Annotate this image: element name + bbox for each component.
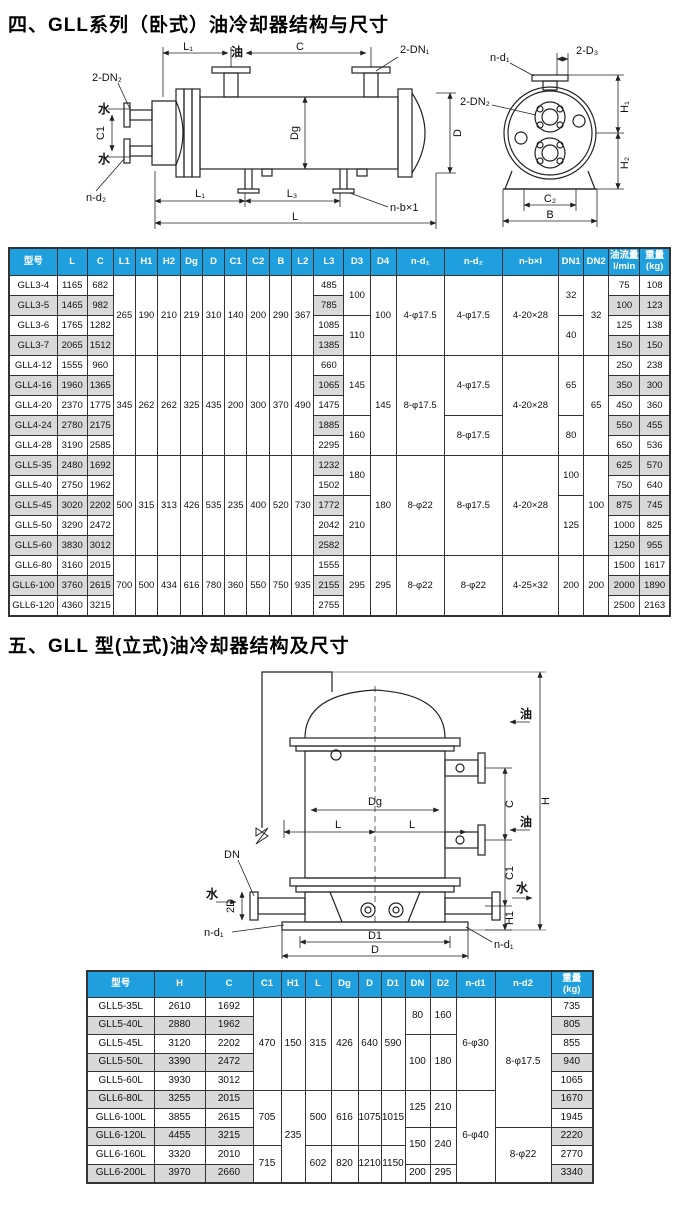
value-cell: 210 [344, 496, 370, 556]
dim-2d: 2D [225, 899, 237, 913]
table1-body: GLL3-41165682265190210219310140200290367… [9, 276, 670, 617]
value-cell: 650 [609, 436, 640, 456]
value-cell: 108 [640, 276, 670, 296]
value-cell: 2370 [57, 396, 87, 416]
model-cell: GLL3-6 [9, 316, 57, 336]
column-header: 型号 [9, 248, 57, 276]
model-cell: GLL5-40L [87, 1016, 154, 1035]
value-cell: 805 [551, 1016, 593, 1035]
value-cell: 325 [180, 356, 202, 456]
value-cell: 1065 [551, 1072, 593, 1091]
table2-body: GLL5-35L26101692470150315426640590801606… [87, 998, 593, 1184]
value-cell: 1772 [314, 496, 344, 516]
value-cell: 1512 [87, 336, 113, 356]
value-cell: 150 [640, 336, 670, 356]
value-cell: 2010 [205, 1146, 253, 1165]
value-cell: 100 [584, 456, 609, 556]
dim-h: H [540, 797, 552, 805]
value-cell: 705 [253, 1090, 281, 1146]
value-cell: 485 [314, 276, 344, 296]
value-cell: 434 [157, 556, 180, 617]
value-cell: 2202 [87, 496, 113, 516]
value-cell: 2880 [154, 1016, 205, 1035]
value-cell: 3930 [154, 1072, 205, 1091]
value-cell: 3830 [57, 536, 87, 556]
value-cell: 500 [113, 456, 135, 556]
value-cell: 8-φ22 [444, 556, 502, 617]
dim-d1: D1 [368, 930, 382, 942]
value-cell: 640 [640, 476, 670, 496]
value-cell: 3340 [551, 1164, 593, 1183]
value-cell: 160 [344, 416, 370, 456]
value-cell: 200 [247, 276, 270, 356]
column-header: H1 [281, 971, 305, 998]
value-cell: 2615 [205, 1109, 253, 1128]
value-cell: 2770 [551, 1146, 593, 1165]
value-cell: 315 [135, 456, 157, 556]
model-cell: GLL5-50 [9, 516, 57, 536]
value-cell: 982 [87, 296, 113, 316]
value-cell: 735 [551, 998, 593, 1017]
value-cell: 200 [405, 1164, 430, 1183]
value-cell: 455 [640, 416, 670, 436]
model-cell: GLL4-12 [9, 356, 57, 376]
value-cell: 1617 [640, 556, 670, 576]
value-cell: 2660 [205, 1164, 253, 1183]
model-cell: GLL3-4 [9, 276, 57, 296]
value-cell: 100 [370, 276, 396, 356]
value-cell: 3012 [205, 1072, 253, 1091]
oil-label-top2: 油 [520, 706, 532, 721]
side-view [124, 67, 425, 193]
value-cell: 219 [180, 276, 202, 356]
value-cell: 2202 [205, 1035, 253, 1054]
value-cell: 1962 [87, 476, 113, 496]
value-cell: 730 [292, 456, 314, 556]
value-cell: 250 [609, 356, 640, 376]
value-cell: 550 [247, 556, 270, 617]
value-cell: 65 [584, 356, 609, 456]
column-header: DN [405, 971, 430, 998]
value-cell: 3760 [57, 576, 87, 596]
value-cell: 2472 [87, 516, 113, 536]
section1-title: 四、GLL系列（卧式）油冷却器结构与尺寸 [8, 10, 677, 37]
value-cell: 360 [640, 396, 670, 416]
value-cell: 138 [640, 316, 670, 336]
model-cell: GLL6-120L [87, 1127, 154, 1146]
value-cell: 80 [405, 998, 430, 1035]
value-cell: 500 [135, 556, 157, 617]
model-cell: GLL5-60L [87, 1072, 154, 1091]
value-cell: 8-φ17.5 [444, 456, 502, 556]
model-cell: GLL4-20 [9, 396, 57, 416]
value-cell: 100 [344, 276, 370, 316]
value-cell: 2780 [57, 416, 87, 436]
value-cell: 3855 [154, 1109, 205, 1128]
table-row: GLL3-41165682265190210219310140200290367… [9, 276, 670, 296]
value-cell: 123 [640, 296, 670, 316]
header-row: 型号HCC1H1LDgDD1DND2n-d1n-d2重量 (kg) [87, 971, 593, 998]
dim-l: L [292, 211, 298, 223]
column-header: H2 [157, 248, 180, 276]
value-cell: 2295 [314, 436, 344, 456]
column-header: Dg [331, 971, 358, 998]
value-cell: 125 [405, 1090, 430, 1127]
column-header: L2 [292, 248, 314, 276]
value-cell: 8-φ17.5 [495, 998, 551, 1128]
dim-2dn2: 2-DN₂ [92, 72, 122, 84]
dim-nd1-right: n-d₁ [494, 939, 514, 951]
model-cell: GLL3-7 [9, 336, 57, 356]
value-cell: 2755 [314, 596, 344, 617]
value-cell: 2163 [640, 596, 670, 617]
column-header: C1 [253, 971, 281, 998]
vertical-dimensions [216, 672, 546, 959]
value-cell: 125 [559, 496, 584, 556]
oil-label-top: 油 [231, 44, 243, 59]
value-cell: 3290 [57, 516, 87, 536]
water-label-bottom: 水 [98, 151, 111, 166]
model-cell: GLL4-28 [9, 436, 57, 456]
column-header: 重量 (kg) [551, 971, 593, 998]
model-cell: GLL5-50L [87, 1053, 154, 1072]
column-header: D2 [430, 971, 456, 998]
value-cell: 1890 [640, 576, 670, 596]
value-cell: 367 [292, 276, 314, 356]
value-cell: 426 [180, 456, 202, 556]
value-cell: 145 [370, 356, 396, 456]
value-cell: 536 [640, 436, 670, 456]
value-cell: 3190 [57, 436, 87, 456]
value-cell: 1065 [314, 376, 344, 396]
table-row: GLL3-617651282108511040125138 [9, 316, 670, 336]
value-cell: 1692 [205, 998, 253, 1017]
value-cell: 500 [305, 1090, 331, 1146]
model-cell: GLL4-16 [9, 376, 57, 396]
value-cell: 3390 [154, 1053, 205, 1072]
model-cell: GLL5-35L [87, 998, 154, 1017]
column-header: L3 [314, 248, 344, 276]
dim-h1v: H1 [504, 911, 516, 925]
value-cell: 1500 [609, 556, 640, 576]
value-cell: 1165 [57, 276, 87, 296]
column-header: 型号 [87, 971, 154, 998]
value-cell: 290 [270, 276, 292, 356]
dim-c2-end: C₂ [544, 193, 556, 205]
value-cell: 295 [430, 1164, 456, 1183]
value-cell: 210 [430, 1090, 456, 1127]
dim-nd1-end: n-d₁ [490, 52, 510, 64]
column-header: DN1 [559, 248, 584, 276]
value-cell: 2042 [314, 516, 344, 536]
value-cell: 295 [344, 556, 370, 617]
value-cell: 640 [358, 998, 381, 1091]
table-row: GLL5-35L26101692470150315426640590801606… [87, 998, 593, 1017]
value-cell: 100 [609, 296, 640, 316]
column-header: n-d₂ [444, 248, 502, 276]
value-cell: 820 [331, 1146, 358, 1184]
column-header: n-d₁ [396, 248, 444, 276]
value-cell: 265 [113, 276, 135, 356]
value-cell: 150 [609, 336, 640, 356]
value-cell: 2175 [87, 416, 113, 436]
column-header: 重量 (kg) [640, 248, 670, 276]
value-cell: 145 [344, 356, 370, 416]
value-cell: 1960 [57, 376, 87, 396]
value-cell: 490 [292, 356, 314, 456]
value-cell: 1250 [609, 536, 640, 556]
value-cell: 535 [203, 456, 225, 556]
value-cell: 875 [609, 496, 640, 516]
value-cell: 940 [551, 1053, 593, 1072]
vertical-cooler-spec-table: 型号HCC1H1LDgDD1DND2n-d1n-d2重量 (kg) GLL5-3… [86, 970, 594, 1184]
value-cell: 75 [609, 276, 640, 296]
value-cell: 4-20×28 [502, 456, 558, 556]
value-cell: 955 [640, 536, 670, 556]
dim-h2-end: H₂ [619, 157, 631, 169]
value-cell: 3120 [154, 1035, 205, 1054]
value-cell: 8-φ22 [396, 556, 444, 617]
model-cell: GLL5-45L [87, 1035, 154, 1054]
value-cell: 2220 [551, 1127, 593, 1146]
value-cell: 1085 [314, 316, 344, 336]
value-cell: 150 [405, 1127, 430, 1164]
value-cell: 960 [87, 356, 113, 376]
value-cell: 200 [225, 356, 247, 456]
value-cell: 4-φ17.5 [444, 356, 502, 416]
value-cell: 295 [370, 556, 396, 617]
value-cell: 3020 [57, 496, 87, 516]
model-cell: GLL5-40 [9, 476, 57, 496]
dim-2dn2-end: 2-DN₂ [460, 96, 490, 108]
value-cell: 4-20×28 [502, 276, 558, 356]
value-cell: 180 [370, 456, 396, 556]
value-cell: 2582 [314, 536, 344, 556]
value-cell: 1670 [551, 1090, 593, 1109]
value-cell: 6-φ30 [456, 998, 495, 1091]
value-cell: 1075 [358, 1090, 381, 1146]
value-cell: 313 [157, 456, 180, 556]
table-row: GLL5-35248016925003153134265352354005207… [9, 456, 670, 476]
column-header: D3 [344, 248, 370, 276]
value-cell: 180 [430, 1035, 456, 1091]
value-cell: 1465 [57, 296, 87, 316]
value-cell: 235 [281, 1090, 305, 1183]
column-header: DN2 [584, 248, 609, 276]
value-cell: 2585 [87, 436, 113, 456]
value-cell: 1962 [205, 1016, 253, 1035]
model-cell: GLL6-80 [9, 556, 57, 576]
header-row: 型号LCL1H1H2DgDC1C2BL2L3D3D4n-d₁n-d₂n-b×lD… [9, 248, 670, 276]
dim-c: C [296, 41, 304, 53]
value-cell: 590 [381, 998, 405, 1091]
value-cell: 426 [331, 998, 358, 1091]
value-cell: 750 [270, 556, 292, 617]
water-label-left: 水 [206, 886, 219, 901]
column-header: C2 [247, 248, 270, 276]
value-cell: 660 [314, 356, 344, 376]
value-cell: 625 [609, 456, 640, 476]
value-cell: 700 [113, 556, 135, 617]
value-cell: 435 [203, 356, 225, 456]
model-cell: GLL5-35 [9, 456, 57, 476]
value-cell: 370 [270, 356, 292, 456]
value-cell: 125 [609, 316, 640, 336]
column-header: 油流量 l/min [609, 248, 640, 276]
dim-c1: C1 [95, 126, 107, 140]
value-cell: 6-φ40 [456, 1090, 495, 1183]
column-header: n-b×l [502, 248, 558, 276]
column-header: D [203, 248, 225, 276]
value-cell: 2750 [57, 476, 87, 496]
value-cell: 345 [113, 356, 135, 456]
catalog-page: { "colors": { "header_bg": "#1f9fdd", "h… [0, 0, 677, 1213]
value-cell: 80 [559, 416, 584, 456]
value-cell: 210 [157, 276, 180, 356]
value-cell: 190 [135, 276, 157, 356]
value-cell: 785 [314, 296, 344, 316]
table-row: GLL4-12155596034526226232543520030037049… [9, 356, 670, 376]
value-cell: 745 [640, 496, 670, 516]
section2-title: 五、GLL 型(立式)油冷却器结构及尺寸 [8, 631, 677, 658]
column-header: D4 [370, 248, 396, 276]
column-header: n-d2 [495, 971, 551, 998]
value-cell: 3215 [87, 596, 113, 617]
value-cell: 3160 [57, 556, 87, 576]
value-cell: 520 [270, 456, 292, 556]
value-cell: 360 [225, 556, 247, 617]
column-header: L [57, 248, 87, 276]
model-cell: GLL6-120 [9, 596, 57, 617]
dim-nd2: n-d₂ [86, 192, 106, 204]
value-cell: 1365 [87, 376, 113, 396]
value-cell: 4455 [154, 1127, 205, 1146]
side-view-labels: L₁ 油 C 2-DN₁ 2-DN₂ 水 C1 水 n-d₂ Dg D L₁ L… [86, 41, 464, 223]
value-cell: 2480 [57, 456, 87, 476]
value-cell: 780 [203, 556, 225, 617]
value-cell: 4-φ17.5 [444, 276, 502, 356]
value-cell: 1210 [358, 1146, 381, 1184]
dim-dn: DN [224, 849, 240, 861]
value-cell: 1692 [87, 456, 113, 476]
value-cell: 8-φ17.5 [396, 356, 444, 456]
vertical-cooler-drawing: 油 Dg L L C H 油 水 C1 H1 DN 水 2D n-d₁ n-d₁… [0, 660, 677, 960]
oil-label-mid: 油 [520, 814, 532, 829]
value-cell: 1765 [57, 316, 87, 336]
dim-d: D [452, 129, 464, 137]
value-cell: 300 [640, 376, 670, 396]
value-cell: 8-φ17.5 [444, 416, 502, 456]
value-cell: 1555 [314, 556, 344, 576]
value-cell: 2065 [57, 336, 87, 356]
value-cell: 1150 [381, 1146, 405, 1184]
value-cell: 2015 [87, 556, 113, 576]
horizontal-cooler-drawing: L₁ 油 C 2-DN₁ 2-DN₂ 水 C1 水 n-d₂ Dg D L₁ L… [0, 39, 677, 241]
column-header: D1 [381, 971, 405, 998]
column-header: C1 [225, 248, 247, 276]
value-cell: 140 [225, 276, 247, 356]
model-cell: GLL5-45 [9, 496, 57, 516]
value-cell: 1232 [314, 456, 344, 476]
value-cell: 2610 [154, 998, 205, 1017]
value-cell: 1555 [57, 356, 87, 376]
dim-l1-bottom: L₁ [195, 188, 205, 200]
value-cell: 8-φ22 [396, 456, 444, 556]
dim-b-end: B [546, 209, 553, 221]
value-cell: 2500 [609, 596, 640, 617]
value-cell: 160 [430, 998, 456, 1035]
table-row: GLL4-242780217518851608-φ17.580550455 [9, 416, 670, 436]
value-cell: 1385 [314, 336, 344, 356]
column-header: L [305, 971, 331, 998]
column-header: L1 [113, 248, 135, 276]
column-header: C [87, 248, 113, 276]
column-header: n-d1 [456, 971, 495, 998]
value-cell: 1475 [314, 396, 344, 416]
value-cell: 350 [609, 376, 640, 396]
value-cell: 262 [157, 356, 180, 456]
value-cell: 4-20×28 [502, 356, 558, 456]
water-label-right: 水 [516, 880, 529, 895]
model-cell: GLL5-60 [9, 536, 57, 556]
dim-h1-end: H₁ [619, 101, 631, 113]
value-cell: 1282 [87, 316, 113, 336]
value-cell: 40 [559, 316, 584, 356]
value-cell: 1885 [314, 416, 344, 436]
model-cell: GLL3-5 [9, 296, 57, 316]
value-cell: 3320 [154, 1146, 205, 1165]
value-cell: 4-25×32 [502, 556, 558, 617]
value-cell: 855 [551, 1035, 593, 1054]
model-cell: GLL6-100L [87, 1109, 154, 1128]
table2-header: 型号HCC1H1LDgDD1DND2n-d1n-d2重量 (kg) [87, 971, 593, 998]
value-cell: 470 [253, 998, 281, 1091]
value-cell: 300 [247, 356, 270, 456]
value-cell: 825 [640, 516, 670, 536]
model-cell: GLL6-80L [87, 1090, 154, 1109]
value-cell: 1775 [87, 396, 113, 416]
dim-l1-top: L₁ [183, 41, 193, 53]
value-cell: 3970 [154, 1164, 205, 1183]
value-cell: 935 [292, 556, 314, 617]
value-cell: 1502 [314, 476, 344, 496]
value-cell: 32 [559, 276, 584, 316]
water-label-top: 水 [98, 101, 111, 116]
dim-l3: L₃ [287, 188, 298, 200]
value-cell: 1015 [381, 1090, 405, 1146]
table-row: GLL6-80316020157005004346167803605507509… [9, 556, 670, 576]
column-header: Dg [180, 248, 202, 276]
column-header: H [154, 971, 205, 998]
value-cell: 2155 [314, 576, 344, 596]
table-row: GLL5-45302022021772210125875745 [9, 496, 670, 516]
dim-l-right: L [409, 819, 415, 831]
value-cell: 715 [253, 1146, 281, 1184]
value-cell: 570 [640, 456, 670, 476]
model-cell: GLL4-24 [9, 416, 57, 436]
model-cell: GLL6-100 [9, 576, 57, 596]
value-cell: 3215 [205, 1127, 253, 1146]
dim-nd1-left: n-d₁ [204, 927, 224, 939]
value-cell: 3012 [87, 536, 113, 556]
dim-dv: D [371, 944, 379, 956]
column-header: H1 [135, 248, 157, 276]
value-cell: 616 [180, 556, 202, 617]
dim-dg2: Dg [368, 796, 382, 808]
table1-header: 型号LCL1H1H2DgDC1C2BL2L3D3D4n-d₁n-d₂n-b×lD… [9, 248, 670, 276]
value-cell: 65 [559, 356, 584, 416]
value-cell: 315 [305, 998, 331, 1091]
